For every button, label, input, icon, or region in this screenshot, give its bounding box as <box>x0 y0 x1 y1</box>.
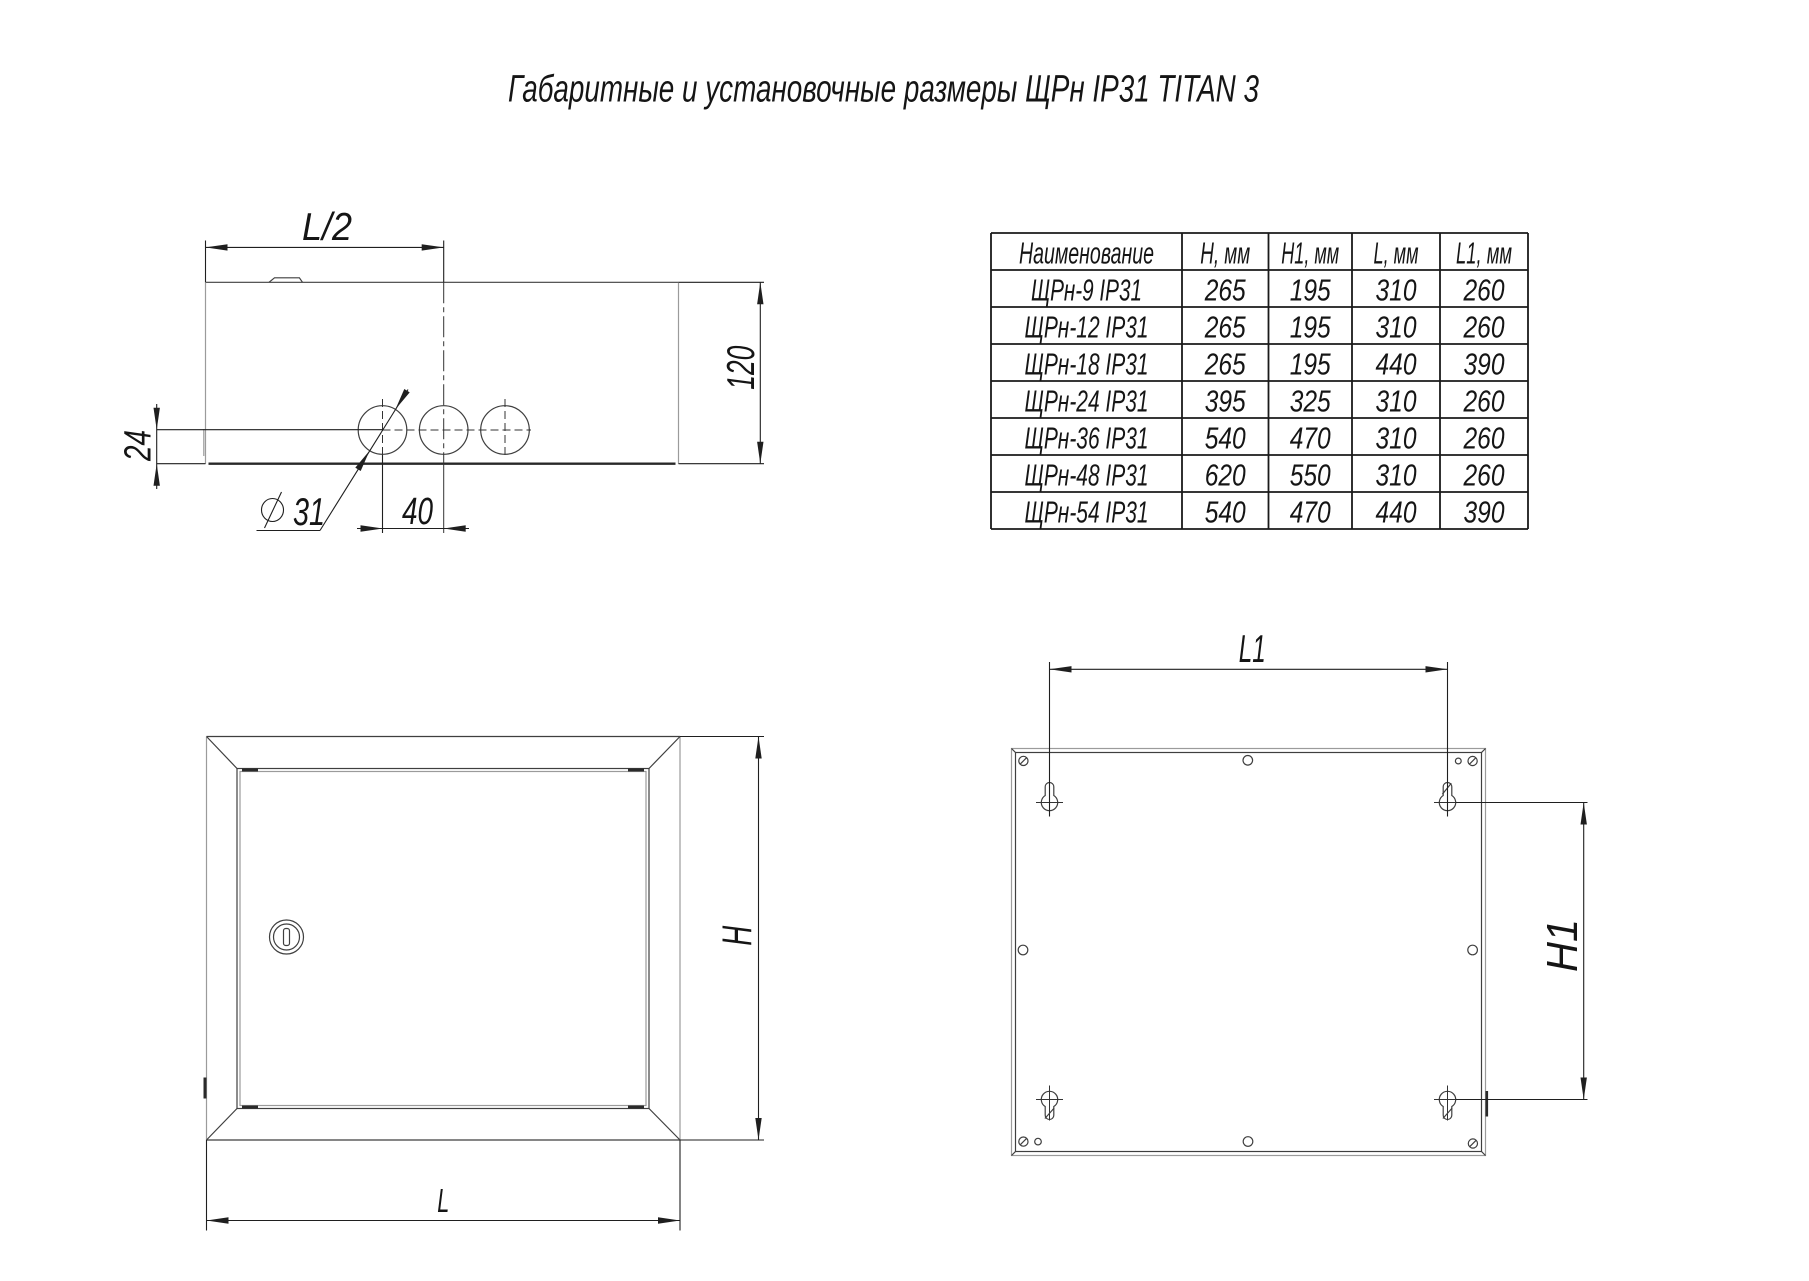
svg-text:470: 470 <box>1290 421 1331 456</box>
svg-text:24: 24 <box>118 430 160 462</box>
svg-text:L: L <box>437 1182 449 1219</box>
svg-text:540: 540 <box>1205 495 1246 530</box>
svg-text:ЩРн-9 IP31: ЩРн-9 IP31 <box>1031 273 1142 308</box>
svg-text:L, мм: L, мм <box>1374 236 1419 271</box>
svg-text:H1, мм: H1, мм <box>1281 236 1339 271</box>
svg-text:L1: L1 <box>1239 628 1266 671</box>
svg-text:40: 40 <box>402 491 433 533</box>
svg-text:Наименование: Наименование <box>1019 236 1154 271</box>
svg-text:H1: H1 <box>1538 919 1587 972</box>
svg-text:620: 620 <box>1205 458 1246 493</box>
svg-text:ЩРн-36 IP31: ЩРн-36 IP31 <box>1025 421 1149 456</box>
svg-text:440: 440 <box>1376 495 1417 530</box>
svg-text:260: 260 <box>1463 384 1505 419</box>
svg-text:265: 265 <box>1204 347 1246 382</box>
svg-text:195: 195 <box>1290 347 1332 382</box>
svg-text:ЩРн-12 IP31: ЩРн-12 IP31 <box>1025 310 1149 345</box>
svg-text:310: 310 <box>1376 421 1417 456</box>
svg-text:395: 395 <box>1205 384 1247 419</box>
svg-text:260: 260 <box>1463 273 1505 308</box>
svg-text:265: 265 <box>1204 310 1246 345</box>
svg-text:310: 310 <box>1376 384 1417 419</box>
svg-text:ЩРн-18 IP31: ЩРн-18 IP31 <box>1025 347 1149 382</box>
svg-text:310: 310 <box>1376 310 1417 345</box>
svg-text:L/2: L/2 <box>302 206 352 249</box>
svg-text:440: 440 <box>1376 347 1417 382</box>
svg-text:260: 260 <box>1463 310 1505 345</box>
svg-text:195: 195 <box>1290 273 1332 308</box>
svg-text:195: 195 <box>1290 310 1332 345</box>
svg-text:550: 550 <box>1290 458 1331 493</box>
svg-text:260: 260 <box>1463 421 1505 456</box>
svg-text:31: 31 <box>293 491 325 534</box>
svg-text:310: 310 <box>1376 273 1417 308</box>
svg-text:ЩРн-24 IP31: ЩРн-24 IP31 <box>1025 384 1149 419</box>
svg-text:470: 470 <box>1290 495 1331 530</box>
svg-text:L1, мм: L1, мм <box>1456 236 1512 271</box>
svg-text:265: 265 <box>1204 273 1246 308</box>
svg-text:540: 540 <box>1205 421 1246 456</box>
svg-text:390: 390 <box>1464 495 1505 530</box>
svg-text:ЩРн-48 IP31: ЩРн-48 IP31 <box>1025 458 1149 493</box>
svg-text:310: 310 <box>1376 458 1417 493</box>
svg-text:120: 120 <box>720 345 763 389</box>
svg-text:ЩРн-54 IP31: ЩРн-54 IP31 <box>1025 495 1149 530</box>
svg-text:H, мм: H, мм <box>1200 236 1250 271</box>
svg-text:Габаритные и установочные разм: Габаритные и установочные размеры ЩРн IP… <box>508 69 1259 111</box>
svg-text:H: H <box>714 925 761 945</box>
svg-text:260: 260 <box>1463 458 1505 493</box>
svg-text:390: 390 <box>1464 347 1505 382</box>
svg-text:325: 325 <box>1290 384 1332 419</box>
